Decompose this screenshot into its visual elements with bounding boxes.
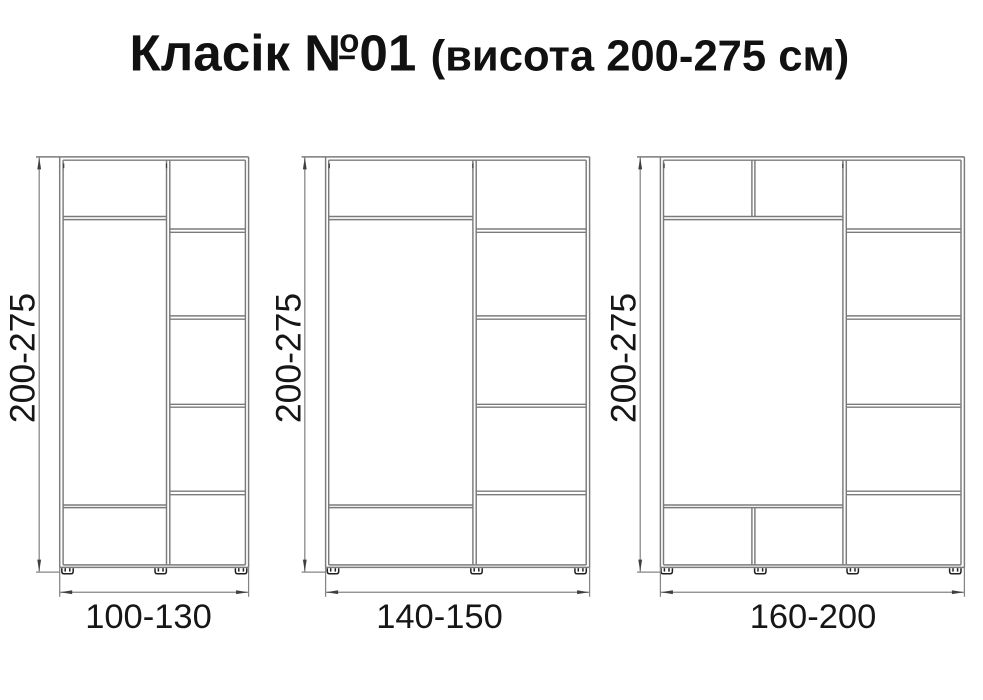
svg-text:140-150: 140-150	[376, 598, 503, 636]
svg-text:100-130: 100-130	[85, 598, 212, 636]
svg-text:200-275: 200-275	[268, 293, 308, 423]
svg-text:200-275: 200-275	[3, 293, 43, 423]
svg-text:160-200: 160-200	[750, 598, 877, 636]
svg-text:200-275: 200-275	[604, 293, 644, 423]
